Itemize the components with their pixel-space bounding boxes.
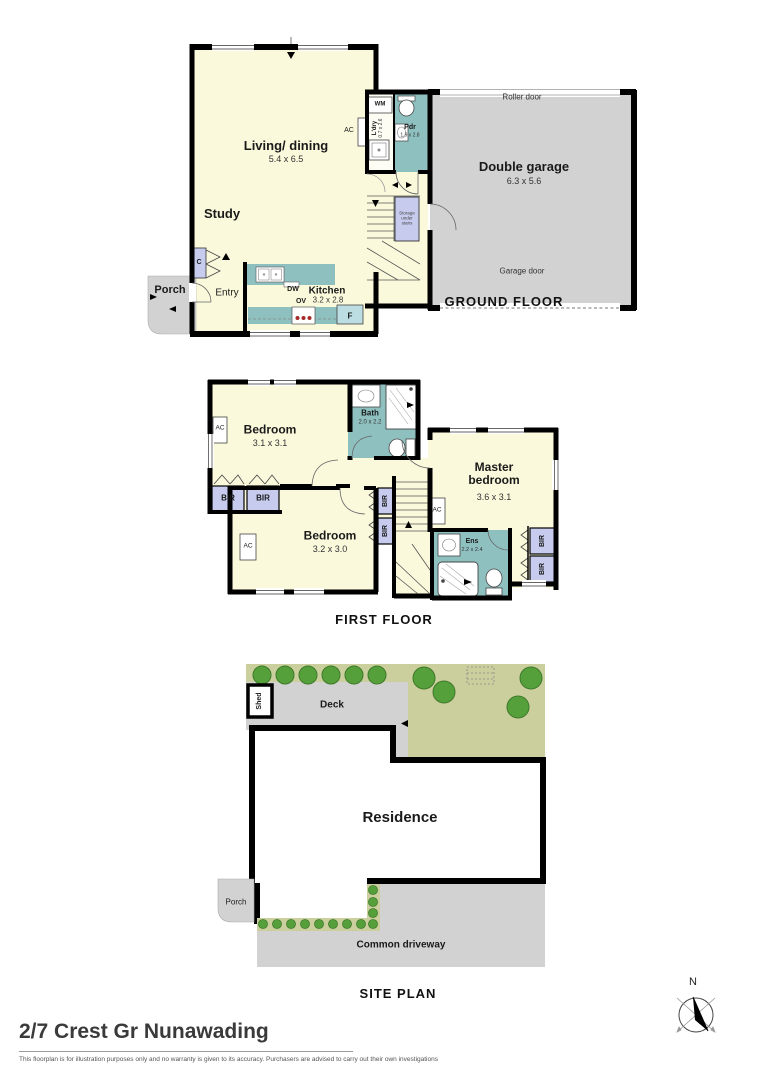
ensuite-vanity bbox=[438, 534, 460, 556]
ac-label-bed2: AC bbox=[243, 542, 252, 549]
laundry-label: L'dry 0.7 x 2.6 bbox=[372, 118, 384, 137]
driveway-label: Common driveway bbox=[357, 940, 446, 951]
bir-label-3: BIR bbox=[382, 495, 390, 507]
powder-dims: 1.9 x 2.8 bbox=[400, 133, 419, 139]
front-door-opening bbox=[189, 283, 196, 302]
porch-label: Porch bbox=[154, 284, 185, 296]
residence-label: Residence bbox=[362, 810, 437, 827]
living-dining-dims: 5.4 x 6.5 bbox=[269, 155, 304, 165]
bath-toilet bbox=[389, 439, 405, 457]
disclaimer-text: This floorplan is for illustration purpo… bbox=[19, 1056, 438, 1063]
laundry-dims: 0.7 x 2.6 bbox=[379, 118, 385, 137]
entry-label: Entry bbox=[215, 288, 238, 299]
bir-label-6: BIR bbox=[539, 563, 547, 575]
cupboard-label: C bbox=[196, 259, 201, 267]
master-bedroom-label: Master bedroom bbox=[463, 461, 525, 487]
toilet-icon bbox=[399, 100, 414, 116]
first-floor-caption: FIRST FLOOR bbox=[335, 613, 433, 627]
roller-door-label: Roller door bbox=[502, 94, 541, 103]
deck-label: Deck bbox=[320, 700, 344, 711]
ground-floor-caption: GROUND FLOOR bbox=[445, 295, 564, 309]
site-plan-caption: SITE PLAN bbox=[360, 987, 437, 1001]
first-floor-plan: Bedroom 3.1 x 3.1 Bath 2.0 x 2.2 Master … bbox=[200, 376, 570, 632]
bedroom2-label: Bedroom bbox=[304, 529, 357, 542]
garage-label: Double garage bbox=[479, 160, 569, 174]
kitchen-dims: 3.2 x 2.8 bbox=[313, 297, 344, 306]
dishwasher-label: DW bbox=[287, 286, 299, 294]
bath-vanity bbox=[352, 385, 380, 407]
powder-label: Pdr bbox=[404, 124, 416, 132]
study-label: Study bbox=[204, 207, 240, 221]
title-divider bbox=[19, 1051, 353, 1052]
bedroom1-dims: 3.1 x 3.1 bbox=[253, 439, 288, 449]
floorplan-page: Living/ dining 5.4 x 6.5 Study Kitchen 3… bbox=[0, 0, 764, 1080]
bir-label-1: BIR bbox=[221, 495, 235, 504]
fridge-label: F bbox=[348, 313, 353, 322]
ac-label-bed1: AC bbox=[215, 424, 224, 431]
stairwell-floor bbox=[394, 476, 430, 596]
bir-label-5: BIR bbox=[539, 535, 547, 547]
master-bedroom-dims: 3.6 x 3.1 bbox=[477, 493, 512, 503]
compass-north-label: N bbox=[689, 976, 697, 988]
ensuite-dims: 2.2 x 2.4 bbox=[461, 547, 482, 553]
living-dining-label: Living/ dining bbox=[244, 139, 329, 153]
shed-label: Shed bbox=[256, 692, 264, 709]
ensuite-toilet bbox=[486, 569, 502, 587]
site-plan: Shed Deck Residence Porch Common drivewa… bbox=[215, 660, 550, 1005]
bath-shower bbox=[386, 385, 416, 429]
washing-machine-label: WM bbox=[375, 102, 386, 109]
bath-label: Bath bbox=[361, 410, 379, 419]
bath-dims: 2.0 x 2.2 bbox=[358, 420, 381, 427]
oven-label: OV bbox=[296, 298, 306, 306]
compass: N bbox=[655, 970, 745, 1055]
garage-door-label: Garage door bbox=[500, 268, 545, 277]
compass-drawing bbox=[655, 970, 745, 1055]
garage-dims: 6.3 x 5.6 bbox=[507, 177, 542, 187]
ground-floor-plan: Living/ dining 5.4 x 6.5 Study Kitchen 3… bbox=[146, 36, 646, 338]
site-plan-drawing bbox=[215, 660, 550, 1005]
kitchen-bench bbox=[248, 305, 363, 324]
ac-label: AC bbox=[344, 127, 354, 135]
property-address-title: 2/7 Crest Gr Nunawading bbox=[19, 1020, 269, 1044]
oven bbox=[292, 307, 315, 324]
bir-label-4: BIR bbox=[382, 525, 390, 537]
ac-label-master: AC bbox=[432, 506, 441, 513]
bedroom1-label: Bedroom bbox=[244, 423, 297, 436]
bedroom2-dims: 3.2 x 3.0 bbox=[313, 545, 348, 555]
ensuite-label: Ens bbox=[466, 538, 479, 546]
storage-label: Storage under stairs bbox=[396, 212, 419, 227]
kitchen-island bbox=[245, 264, 335, 287]
bir-label-2: BIR bbox=[256, 495, 270, 504]
site-porch-label: Porch bbox=[226, 899, 247, 908]
